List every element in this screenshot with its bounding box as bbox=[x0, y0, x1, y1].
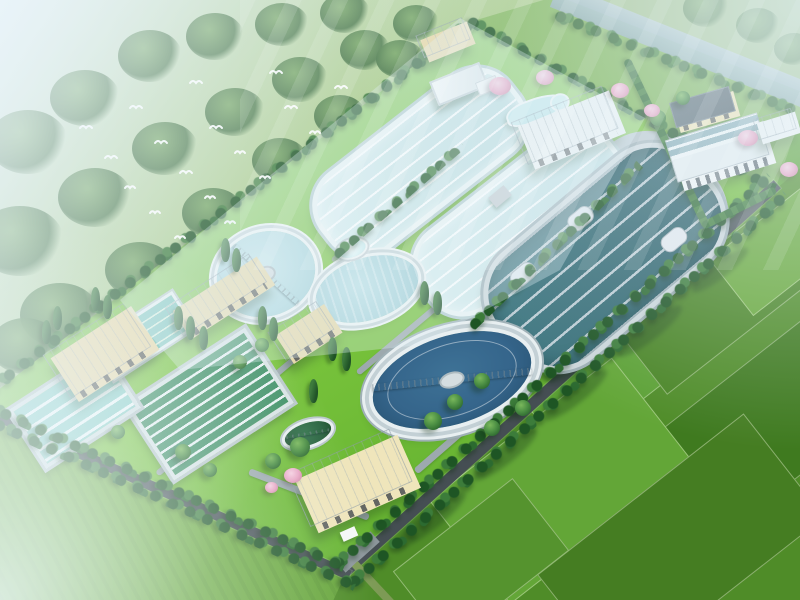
tree bbox=[515, 400, 531, 416]
pink-flowering-tree bbox=[284, 468, 302, 483]
tree bbox=[474, 373, 490, 389]
tree bbox=[255, 338, 269, 352]
conifer-tree bbox=[91, 287, 100, 311]
pink-flowering-tree bbox=[644, 104, 660, 117]
aerial-scene bbox=[0, 0, 800, 600]
clarifier-hub bbox=[440, 371, 465, 389]
tree bbox=[676, 91, 690, 105]
thickener-bridge bbox=[286, 428, 330, 439]
tree bbox=[447, 394, 463, 410]
conifer-tree bbox=[269, 317, 278, 341]
tree bbox=[424, 412, 442, 430]
bird-icon bbox=[80, 71, 347, 238]
bird-flock bbox=[70, 48, 400, 268]
tree-clump bbox=[255, 3, 309, 46]
conifer-tree bbox=[103, 295, 112, 319]
conifer-tree bbox=[53, 306, 62, 330]
pink-flowering-tree bbox=[489, 77, 511, 95]
tree-clump bbox=[736, 8, 780, 43]
tree bbox=[111, 425, 125, 439]
tree bbox=[484, 420, 500, 436]
conifer-tree bbox=[199, 326, 208, 350]
conifer-tree bbox=[174, 306, 183, 330]
conifer-tree bbox=[42, 320, 51, 344]
annex-building bbox=[757, 112, 800, 145]
pink-flowering-tree bbox=[780, 162, 798, 177]
conifer-tree bbox=[186, 316, 195, 340]
tree bbox=[265, 453, 281, 469]
conifer-tree bbox=[342, 347, 351, 371]
conifer-tree bbox=[420, 281, 429, 305]
pink-flowering-tree bbox=[611, 83, 629, 98]
tree bbox=[203, 463, 217, 477]
conifer-tree bbox=[309, 379, 318, 403]
pink-flowering-tree bbox=[738, 130, 758, 146]
pink-flowering-tree bbox=[265, 482, 278, 493]
pink-flowering-tree bbox=[536, 70, 554, 85]
tree bbox=[175, 444, 191, 460]
tree bbox=[233, 355, 247, 369]
conifer-tree bbox=[328, 337, 337, 361]
conifer-tree bbox=[433, 291, 442, 315]
conifer-tree bbox=[258, 306, 267, 330]
tree bbox=[290, 437, 310, 457]
